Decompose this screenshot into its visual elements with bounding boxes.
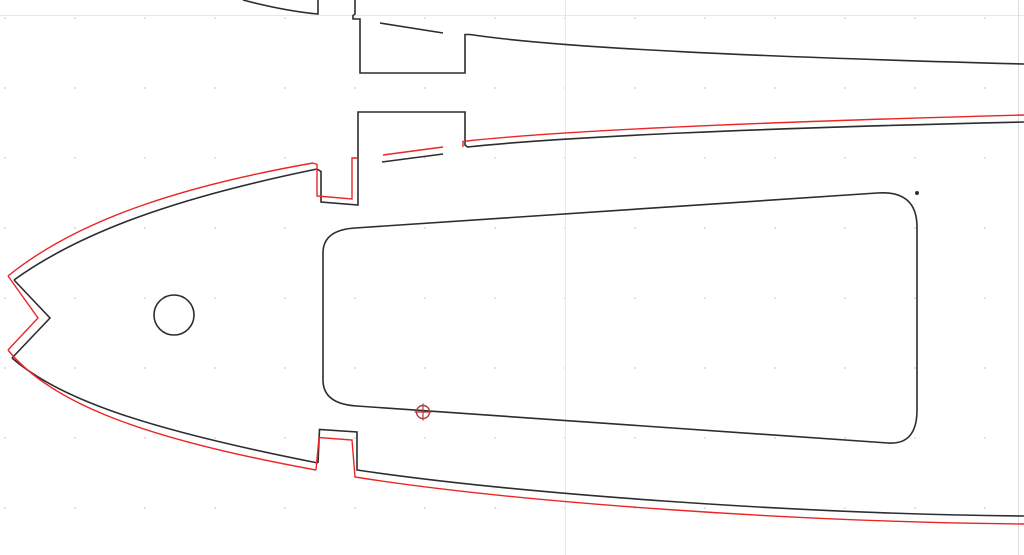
grid-dot	[144, 437, 146, 439]
grid-dot	[704, 17, 706, 19]
grid-dot	[214, 507, 216, 509]
rib-bottom-notch-and-tail[interactable]	[318, 430, 1024, 517]
grid-dot	[634, 227, 636, 229]
toolpath-bottom-notch-and-tail[interactable]	[316, 438, 1024, 525]
grid-dot	[4, 227, 6, 229]
grid-dot	[844, 227, 846, 229]
upper-part-leading-edge[interactable]	[243, 0, 318, 14]
grid-dot	[494, 297, 496, 299]
grid-dot	[144, 87, 146, 89]
grid-dot	[704, 157, 706, 159]
grid-dot	[144, 367, 146, 369]
grid-dot	[144, 507, 146, 509]
toolpath-bottom-surface-left[interactable]	[8, 350, 316, 470]
grid-dot	[424, 507, 426, 509]
rib-lightening-hole[interactable]	[323, 193, 917, 443]
grid-dot	[354, 507, 356, 509]
grid-dot	[424, 367, 426, 369]
grid-dot	[354, 367, 356, 369]
grid-dot	[284, 367, 286, 369]
grid-dot	[214, 157, 216, 159]
grid-dot	[74, 87, 76, 89]
grid-dot	[144, 227, 146, 229]
grid-dot	[844, 17, 846, 19]
grid-dot	[4, 17, 6, 19]
grid-dot	[844, 437, 846, 439]
grid-dot	[774, 367, 776, 369]
grid-dot	[494, 507, 496, 509]
grid-dot	[74, 367, 76, 369]
grid-dot	[634, 157, 636, 159]
grid-dot	[914, 157, 916, 159]
outline-geometry-layer	[12, 0, 1024, 516]
grid-dot	[914, 437, 916, 439]
toolpath-top-notch[interactable]	[313, 158, 358, 199]
grid-dot	[494, 437, 496, 439]
grid-dot	[634, 437, 636, 439]
grid-dot	[704, 297, 706, 299]
grid-dot	[844, 507, 846, 509]
grid-dot	[424, 87, 426, 89]
grid-dot	[704, 367, 706, 369]
grid-dot	[984, 297, 986, 299]
grid-dot	[844, 367, 846, 369]
grid-dot	[494, 227, 496, 229]
grid-dot	[984, 157, 986, 159]
grid-dot	[984, 367, 986, 369]
grid-dot	[774, 227, 776, 229]
grid-dot	[914, 227, 916, 229]
grid-dot	[354, 297, 356, 299]
grid-dot	[774, 87, 776, 89]
grid-dot	[914, 17, 916, 19]
marker-layer	[415, 404, 432, 421]
grid-dot	[144, 297, 146, 299]
grid-dot	[4, 87, 6, 89]
grid-dot	[74, 157, 76, 159]
grid-dot	[354, 87, 356, 89]
grid-dot	[4, 297, 6, 299]
grid-dot	[144, 157, 146, 159]
rib-wire-hole[interactable]	[154, 295, 194, 335]
grid-dot	[844, 297, 846, 299]
grid-dot	[914, 507, 916, 509]
rib-top-surface-left[interactable]	[14, 169, 317, 280]
grid-dot	[424, 297, 426, 299]
vertex-node-dot[interactable]	[915, 191, 919, 195]
grid-dot	[424, 157, 426, 159]
grid-layer	[0, 0, 1024, 555]
grid-dot	[984, 507, 986, 509]
grid-dot	[844, 157, 846, 159]
grid-dot	[424, 227, 426, 229]
grid-dot	[634, 87, 636, 89]
grid-dot	[214, 17, 216, 19]
grid-dot	[984, 87, 986, 89]
grid-dot	[284, 17, 286, 19]
grid-dot	[214, 367, 216, 369]
grid-dot	[494, 87, 496, 89]
rib-nose-v-notch[interactable]	[12, 280, 50, 358]
grid-dot	[494, 17, 496, 19]
grid-dot	[74, 437, 76, 439]
grid-dot	[214, 437, 216, 439]
grid-dot	[774, 17, 776, 19]
grid-dot	[144, 17, 146, 19]
grid-dot	[424, 17, 426, 19]
grid-dot	[74, 17, 76, 19]
grid-dot	[424, 437, 426, 439]
grid-dot	[634, 297, 636, 299]
grid-dot	[984, 437, 986, 439]
grid-dot	[284, 87, 286, 89]
grid-dot	[844, 87, 846, 89]
grid-dot	[214, 227, 216, 229]
upper-part-notch-and-tab[interactable]	[353, 0, 1024, 73]
grid-dot	[74, 227, 76, 229]
grid-dot	[284, 297, 286, 299]
rib-top-notch-and-spar-tab[interactable]	[317, 112, 1024, 205]
grid-dot	[774, 157, 776, 159]
grid-dot	[4, 507, 6, 509]
toolpath-surface-through-tab[interactable]	[383, 147, 443, 155]
grid-dot	[494, 367, 496, 369]
grid-dot	[4, 367, 6, 369]
grid-dot	[4, 157, 6, 159]
drawing-canvas[interactable]	[0, 0, 1024, 555]
grid-dot	[284, 227, 286, 229]
grid-dot	[704, 87, 706, 89]
rib-bottom-surface-left[interactable]	[12, 358, 318, 463]
grid-dot	[214, 87, 216, 89]
grid-dot	[704, 507, 706, 509]
grid-dot	[284, 507, 286, 509]
grid-dot	[284, 157, 286, 159]
grid-dot	[914, 367, 916, 369]
toolpath-nose-v-notch[interactable]	[8, 276, 38, 350]
grid-dot	[74, 507, 76, 509]
grid-dot	[494, 157, 496, 159]
grid-dot	[634, 17, 636, 19]
grid-dot	[984, 17, 986, 19]
grid-dot	[774, 297, 776, 299]
grid-dot	[74, 297, 76, 299]
upper-part-surface-through-tab[interactable]	[380, 23, 443, 33]
grid-dot	[914, 297, 916, 299]
grid-dot	[4, 437, 6, 439]
rib-surface-through-tab[interactable]	[382, 154, 443, 162]
grid-dot	[704, 437, 706, 439]
drawing-viewport	[0, 0, 1024, 555]
grid-dot	[284, 437, 286, 439]
grid-dot	[704, 227, 706, 229]
grid-dot	[634, 367, 636, 369]
toolpath-geometry-layer	[8, 115, 1024, 524]
grid-dot	[214, 297, 216, 299]
grid-dot	[914, 87, 916, 89]
grid-dot	[774, 437, 776, 439]
grid-dot	[984, 227, 986, 229]
grid-dot	[354, 437, 356, 439]
